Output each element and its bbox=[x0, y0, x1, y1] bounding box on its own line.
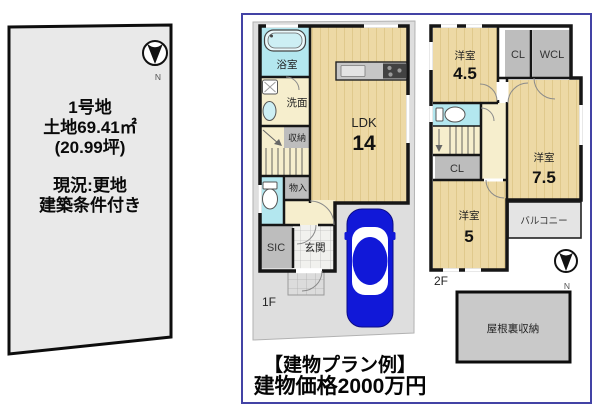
label-bedroom-c-size: 5 bbox=[464, 227, 473, 246]
stairs-1f bbox=[260, 148, 310, 176]
land-plot-panel: N 1号地 土地69.41㎡ (20.99坪) 現況:更地 建築条件付き bbox=[9, 25, 171, 354]
label-sic: SIC bbox=[267, 242, 285, 254]
label-washroom: 洗面 bbox=[287, 97, 308, 109]
attic-storage: 屋根裏収納 bbox=[457, 292, 570, 362]
label-bedroom-b: 洋室 bbox=[534, 151, 555, 164]
room-bedroom-c bbox=[433, 180, 506, 270]
label-ldk-size: 14 bbox=[352, 132, 376, 155]
washing-machine-icon bbox=[263, 80, 278, 94]
flyer-graphic: N 1号地 土地69.41㎡ (20.99坪) 現況:更地 建築条件付き bbox=[0, 0, 600, 418]
label-bedroom-a-size: 4.5 bbox=[453, 64, 477, 83]
label-bath: 浴室 bbox=[277, 58, 298, 71]
land-area-m2: 土地69.41㎡ bbox=[43, 117, 137, 137]
label-balcony: バルコニー bbox=[520, 216, 567, 227]
label-bedroom-a: 洋室 bbox=[455, 49, 476, 62]
car-icon bbox=[345, 209, 396, 327]
label-storage: 収納 bbox=[288, 132, 306, 143]
label-wcl: WCL bbox=[540, 49, 564, 61]
floor1-plan: 浴室 洗面 収納 LDK 14 物入 SIC 玄関 1F bbox=[253, 21, 415, 340]
hall-1f bbox=[284, 200, 335, 225]
label-closet-top: CL bbox=[511, 49, 525, 61]
plan-caption-title: 【建物プラン例】 bbox=[264, 353, 416, 376]
label-closet-mid: CL bbox=[450, 163, 464, 175]
label-attic: 屋根裏収納 bbox=[487, 322, 540, 335]
north-compass-icon-2f bbox=[555, 250, 577, 272]
land-area-tsubo: (20.99坪) bbox=[55, 138, 126, 157]
land-condition: 建築条件付き bbox=[39, 195, 141, 215]
label-floor-1f: 1F bbox=[262, 295, 276, 309]
label-closet-1f: 物入 bbox=[289, 182, 307, 193]
compass-label-2f: N bbox=[564, 281, 570, 291]
real-estate-flyer: N 1号地 土地69.41㎡ (20.99坪) 現況:更地 建築条件付き bbox=[0, 0, 600, 418]
land-plot-name: 1号地 bbox=[68, 97, 111, 117]
land-status: 現況:更地 bbox=[53, 175, 127, 195]
kitchen-counter-icon bbox=[336, 62, 407, 80]
land-compass-label: N bbox=[155, 72, 161, 82]
washbasin-icon bbox=[263, 102, 276, 121]
label-bedroom-c: 洋室 bbox=[459, 209, 480, 222]
label-bedroom-b-size: 7.5 bbox=[532, 168, 556, 187]
toilet-icon-1f bbox=[263, 182, 278, 209]
plan-caption-price: 建物価格2000万円 bbox=[254, 374, 427, 398]
north-compass-icon bbox=[143, 41, 167, 65]
toilet-icon-2f bbox=[436, 107, 465, 122]
label-entrance: 玄関 bbox=[305, 241, 326, 254]
label-floor-2f: 2F bbox=[434, 274, 448, 288]
label-ldk: LDK bbox=[351, 115, 377, 130]
hall-2f bbox=[481, 103, 507, 180]
bathtub-icon bbox=[265, 30, 306, 51]
floor2-plan: 洋室 4.5 CL WCL 洋室 7.5 CL 洋室 5 バルコニー 2F N bbox=[429, 24, 583, 291]
